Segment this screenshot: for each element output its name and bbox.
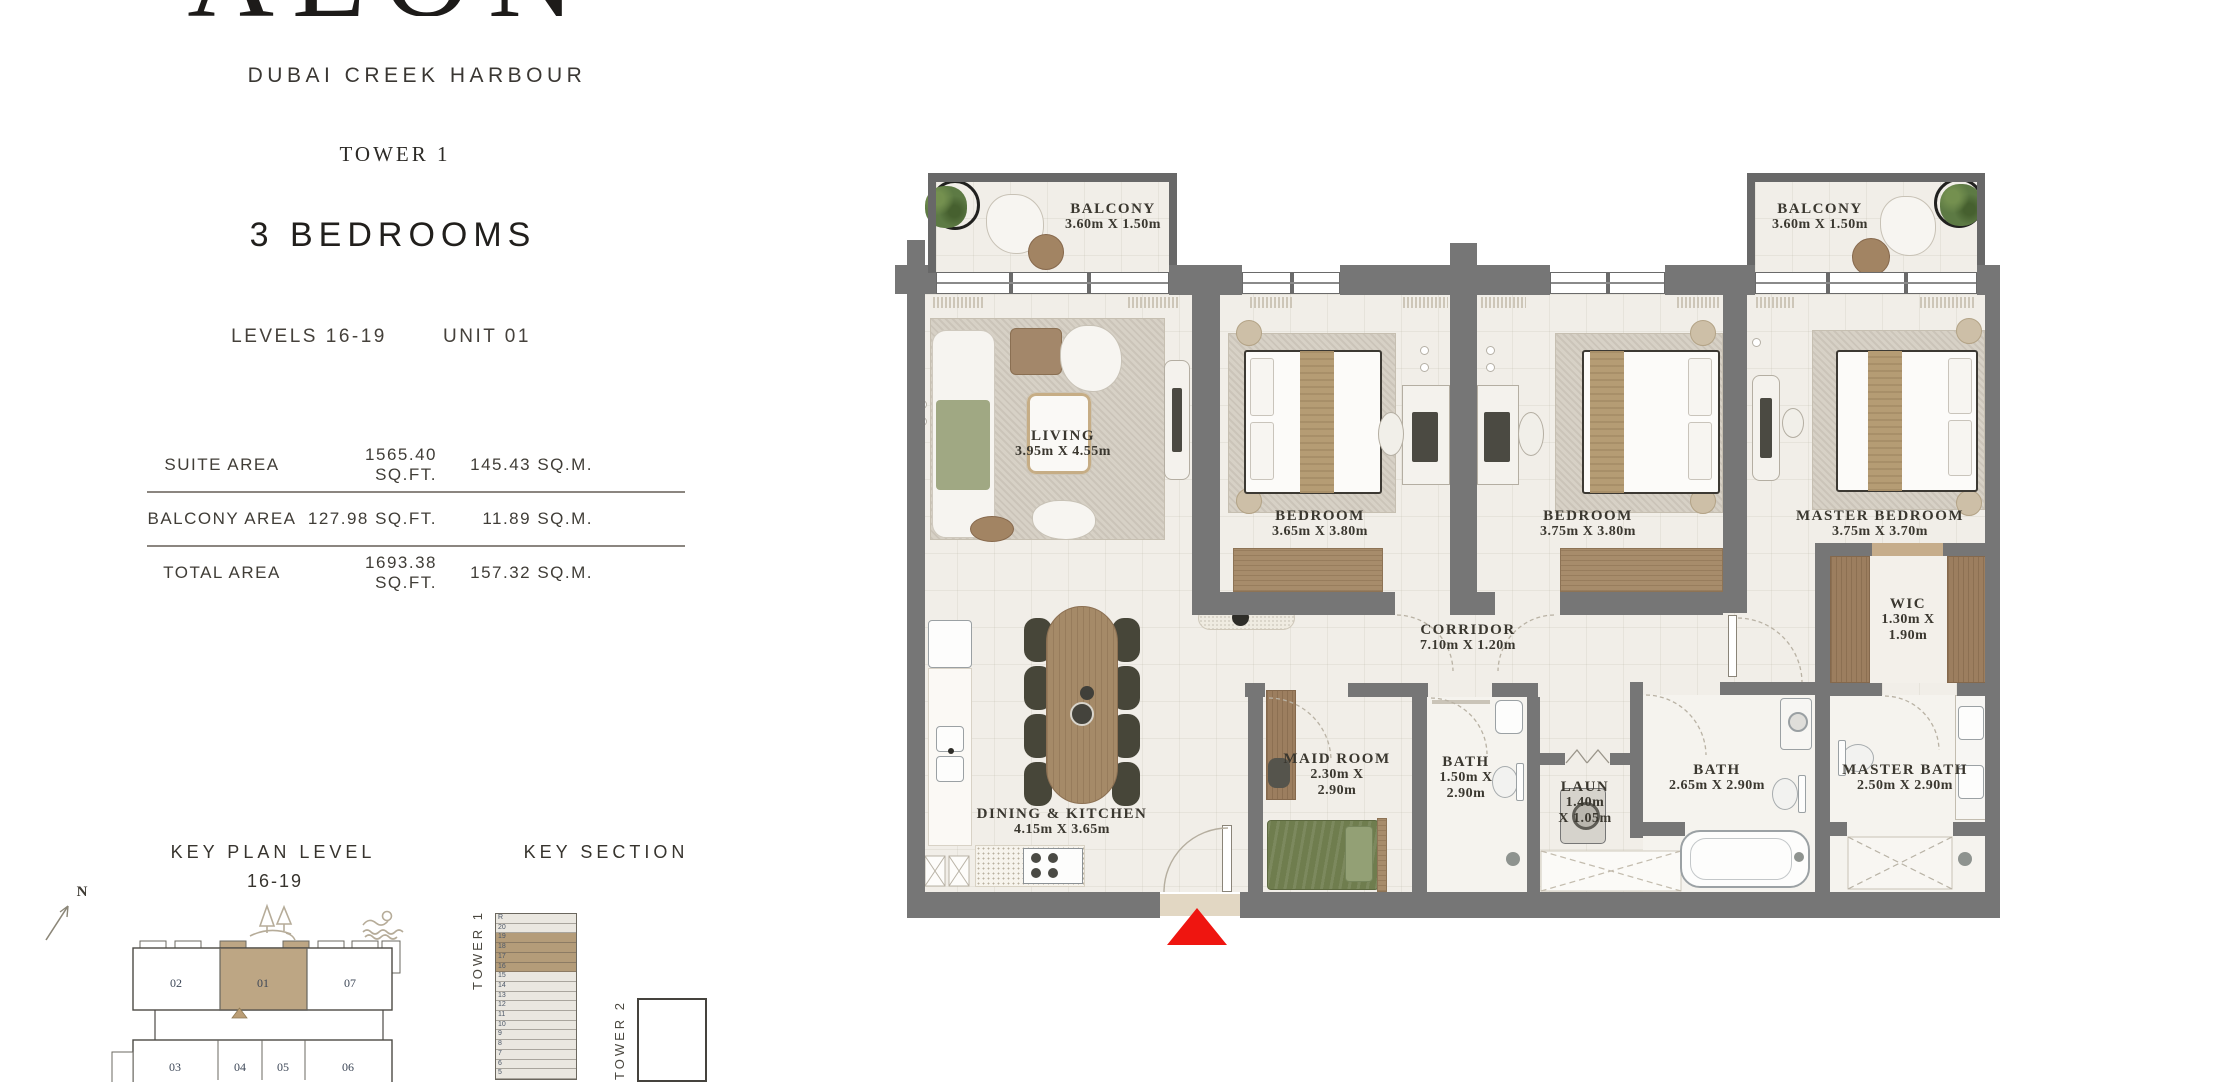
row-label: TOTAL AREA — [147, 563, 297, 583]
fridge — [928, 620, 972, 668]
curtain-hatch — [933, 297, 985, 308]
room-dims: 2.30m X — [1283, 767, 1390, 783]
balcony-wall — [928, 173, 936, 273]
curtain-hatch — [1481, 297, 1526, 308]
entrance-door-arc — [1158, 822, 1230, 894]
wall — [1450, 243, 1477, 273]
shower-head — [1958, 852, 1972, 866]
maid-pillow — [1345, 826, 1373, 882]
room-dims: 7.10m X 1.20m — [1420, 638, 1516, 654]
window-master — [1755, 272, 1977, 294]
bifold-door-laundry — [1565, 748, 1610, 764]
key-plan-diagram: 02 01 07 03 04 05 06 — [100, 888, 410, 1080]
floor-strip: R — [496, 914, 576, 924]
key-plan-building-top: 02 01 07 — [133, 941, 400, 1018]
unit-number: 07 — [344, 976, 356, 990]
row-sqm: 145.43 SQ.M. — [437, 455, 607, 475]
room-dims: 1.40m — [1558, 795, 1611, 811]
floor-strip: 6 — [496, 1060, 576, 1070]
wall — [1348, 683, 1428, 697]
row-sqm: 157.32 SQ.M. — [437, 563, 607, 583]
brand-logo-text: AEON — [185, 0, 595, 16]
room-dims: 2.90m — [1439, 786, 1492, 802]
room-dims: 2.90m — [1283, 783, 1390, 799]
window-mullion — [1087, 273, 1091, 293]
floor-strip: 10 — [496, 1021, 576, 1031]
wall — [1957, 683, 1987, 696]
balcony-wall — [1977, 173, 1985, 273]
floor-strip-highlight: 17 — [496, 953, 576, 963]
wall — [1830, 683, 1882, 696]
nightstand — [1956, 318, 1982, 344]
pillow — [1948, 420, 1972, 476]
wall-light — [1420, 346, 1429, 355]
room-dims: 2.50m X 2.90m — [1842, 778, 1968, 794]
window-mullion — [1290, 273, 1294, 293]
wic-closet-left — [1830, 556, 1870, 683]
desk-chair — [1518, 412, 1544, 456]
north-label: N — [77, 884, 88, 901]
master-shower — [1847, 836, 1953, 890]
wall — [1943, 543, 2000, 556]
balcony-table — [1852, 238, 1890, 276]
room-name: CORRIDOR — [1420, 622, 1516, 638]
key-plan-title: KEY PLAN LEVEL — [171, 842, 376, 863]
wall — [1815, 543, 1830, 900]
floor-number: 6 — [498, 1060, 502, 1067]
unit-number: 06 — [342, 1060, 354, 1074]
wall-light — [1486, 363, 1495, 372]
room-name: BEDROOM — [1540, 508, 1636, 524]
area-table: SUITE AREA 1565.40 SQ.FT. 145.43 SQ.M. B… — [147, 439, 685, 599]
room-label-laundry: LAUN 1.40m X 1.05m — [1558, 779, 1611, 827]
desk-chairpad — [1484, 412, 1510, 462]
maid-bed-frame — [1377, 818, 1387, 892]
door-arc-bath2 — [1645, 694, 1707, 756]
brand-logo-cropped: AEON — [185, 0, 595, 16]
window-living — [936, 272, 1169, 294]
floor-strip: 9 — [496, 1030, 576, 1040]
room-name: DINING & KITCHEN — [977, 806, 1148, 822]
room-label-master-bedroom: MASTER BEDROOM 3.75m X 3.70m — [1796, 508, 1964, 540]
room-name: WIC — [1881, 596, 1934, 612]
window-mullion — [1826, 273, 1830, 293]
room-label-balcony-right: BALCONY 3.60m X 1.50m — [1772, 201, 1868, 233]
shower-head — [1506, 852, 1520, 866]
wall — [1412, 697, 1427, 892]
floor-number: 20 — [498, 924, 506, 931]
curtain-hatch — [1756, 297, 1796, 308]
floor-strip-highlight: 19 — [496, 933, 576, 943]
table-decor — [1080, 686, 1094, 700]
row-sqft: 127.98 SQ.FT. — [297, 509, 437, 529]
curtain-hatch — [1920, 297, 1975, 308]
wic-closet-right — [1947, 556, 1987, 683]
floor-strip: 14 — [496, 982, 576, 992]
floor-number: 10 — [498, 1021, 506, 1028]
tower1-section-label: TOWER 1 — [470, 910, 485, 990]
pillow — [1688, 358, 1712, 416]
cabinet-x-doors — [925, 856, 969, 886]
curtain-hatch — [1128, 297, 1178, 308]
room-label-dining-kitchen: DINING & KITCHEN 4.15m X 3.65m — [977, 806, 1148, 838]
wall — [1527, 697, 1540, 892]
side-table — [1010, 328, 1062, 375]
balcony-table — [1028, 234, 1064, 270]
nightstand — [1236, 320, 1262, 346]
floor-strip: 13 — [496, 992, 576, 1002]
balcony-wall — [1169, 173, 1177, 273]
key-plan-building-bottom: 03 04 05 06 — [112, 1040, 392, 1082]
wall — [1665, 265, 1755, 295]
room-dims: X 1.05m — [1558, 811, 1611, 827]
key-section-title: KEY SECTION — [524, 842, 689, 863]
room-name: BATH — [1439, 754, 1492, 770]
floor-number: 5 — [498, 1069, 502, 1076]
room-name: MAID ROOM — [1283, 751, 1390, 767]
floor-strip-highlight: 18 — [496, 943, 576, 953]
pillow — [1948, 358, 1972, 414]
master-sink — [1958, 706, 1984, 740]
room-dims: 3.75m X 3.80m — [1540, 524, 1636, 540]
tub-faucet — [1794, 852, 1804, 862]
floor-number: 15 — [498, 972, 506, 979]
room-label-bath1: BATH 1.50m X 2.90m — [1439, 754, 1492, 802]
project-name: DUBAI CREEK HARBOUR — [248, 64, 587, 88]
wall — [1169, 265, 1242, 295]
room-label-balcony-left: BALCONY 3.60m X 1.50m — [1065, 201, 1161, 233]
floor-strip-highlight: 16 — [496, 963, 576, 973]
room-dims: 2.65m X 2.90m — [1669, 778, 1765, 794]
room-name: MASTER BEDROOM — [1796, 508, 1964, 524]
wardrobe-bedroom1 — [1233, 548, 1383, 592]
wood-stool — [970, 516, 1014, 542]
room-label-wic: WIC 1.30m X 1.90m — [1881, 596, 1934, 644]
floor-number: 8 — [498, 1040, 502, 1047]
curtain-hatch — [1403, 297, 1448, 308]
brochure-page: { "brand": { "logo_text": "AEON", "proje… — [0, 0, 2220, 1080]
floor-number: 16 — [498, 963, 506, 970]
wall — [1630, 682, 1643, 838]
bed-throw — [1868, 351, 1902, 491]
bathtub-inner — [1690, 838, 1792, 880]
balcony-wall — [1747, 173, 1985, 182]
bed-throw — [1300, 351, 1334, 493]
room-dims: 1.30m X — [1881, 612, 1934, 628]
wall — [1492, 683, 1538, 697]
bath1-toilet — [1492, 766, 1518, 798]
burner — [1031, 853, 1041, 863]
row-sqft: 1565.40 SQ.FT. — [297, 445, 437, 485]
window-bedroom2 — [1550, 272, 1665, 294]
balcony-wall — [1747, 173, 1755, 273]
master-wic-threshold — [1872, 543, 1943, 556]
kitchen-sink — [936, 756, 964, 782]
floor-number: 13 — [498, 992, 506, 999]
pillow — [1688, 422, 1712, 480]
table-row: BALCONY AREA 127.98 SQ.FT. 11.89 SQ.M. — [147, 493, 685, 547]
room-name: BATH — [1669, 762, 1765, 778]
floor-strip: 20 — [496, 924, 576, 934]
tv-screen — [1172, 388, 1182, 452]
bath2-toilet — [1772, 778, 1798, 810]
wall — [1340, 265, 1550, 295]
armchair — [1060, 325, 1122, 392]
wall — [1538, 753, 1565, 765]
room-label-bedroom1: BEDROOM 3.65m X 3.80m — [1272, 508, 1368, 540]
door-arc-master-hall — [1737, 617, 1803, 683]
room-dims: 3.75m X 3.70m — [1796, 524, 1964, 540]
floor-number: 7 — [498, 1050, 502, 1057]
floor-strip: 8 — [496, 1040, 576, 1050]
linen-closet — [1540, 850, 1682, 892]
wall — [1192, 294, 1220, 615]
desk-chairpad — [1412, 412, 1438, 462]
wall — [907, 240, 925, 918]
floor-strip: 15 — [496, 972, 576, 982]
curtain-hatch — [1677, 297, 1721, 308]
room-name: BEDROOM — [1272, 508, 1368, 524]
row-sqm: 11.89 SQ.M. — [437, 509, 607, 529]
wall — [1477, 592, 1495, 615]
door-arc-bath1 — [1430, 697, 1488, 755]
room-label-maid-room: MAID ROOM 2.30m X 2.90m — [1283, 751, 1390, 799]
nightstand — [1690, 320, 1716, 346]
unit-number: 03 — [169, 1060, 181, 1074]
floor-number: 17 — [498, 953, 506, 960]
room-name: LIVING — [1015, 428, 1111, 444]
floor-number: 12 — [498, 1001, 506, 1008]
room-dims: 3.60m X 1.50m — [1772, 217, 1868, 233]
bath1-toilet-tank — [1516, 763, 1524, 801]
table-row: SUITE AREA 1565.40 SQ.FT. 145.43 SQ.M. — [147, 439, 685, 493]
room-dims: 4.15m X 3.65m — [977, 822, 1148, 838]
wall — [1820, 543, 1872, 556]
room-name: LAUN — [1558, 779, 1611, 795]
wall — [1450, 294, 1477, 615]
room-label-living: LIVING 3.95m X 4.55m — [1015, 428, 1111, 460]
wall — [1248, 683, 1263, 892]
curtain-hatch — [1250, 297, 1292, 308]
tv-screen — [1760, 398, 1772, 458]
floor-number: 19 — [498, 933, 506, 940]
unit-label: UNIT 01 — [443, 326, 531, 348]
row-sqft: 1693.38 SQ.FT. — [297, 553, 437, 593]
floor-number: 18 — [498, 943, 506, 950]
burner — [1031, 868, 1041, 878]
floor-strip: 11 — [496, 1011, 576, 1021]
balcony-chair — [1880, 196, 1936, 256]
table-decor — [1070, 702, 1094, 726]
floor-number: 11 — [498, 1011, 505, 1018]
room-label-corridor: CORRIDOR 7.10m X 1.20m — [1420, 622, 1516, 654]
wall-light — [1420, 363, 1429, 372]
window-mullion — [1904, 273, 1908, 293]
room-dims: 3.60m X 1.50m — [1065, 217, 1161, 233]
unit-number: 01 — [257, 976, 269, 990]
table-row: TOTAL AREA 1693.38 SQ.FT. 157.32 SQ.M. — [147, 547, 685, 599]
door-leaf-master-hall — [1728, 615, 1737, 677]
room-dims: 3.95m X 4.55m — [1015, 444, 1111, 460]
wall — [1723, 294, 1747, 613]
floor-strip: 12 — [496, 1001, 576, 1011]
room-dims: 3.65m X 3.80m — [1272, 524, 1368, 540]
plant — [1940, 184, 1982, 226]
floor-strip: 5 — [496, 1069, 576, 1079]
floor-number: 9 — [498, 1030, 502, 1037]
wall — [1240, 892, 2000, 918]
pillow — [1250, 358, 1274, 416]
wall-light — [1486, 346, 1495, 355]
wall — [1953, 822, 2000, 836]
tower2-section-outline — [637, 998, 707, 1082]
wall — [1720, 682, 1820, 695]
unit-number: 02 — [170, 976, 182, 990]
swimmer-icon — [363, 912, 403, 940]
wall — [1220, 592, 1395, 615]
burner — [1048, 853, 1058, 863]
room-label-bedroom2: BEDROOM 3.75m X 3.80m — [1540, 508, 1636, 540]
sofa-green-throw — [936, 400, 990, 490]
burner — [1048, 868, 1058, 878]
room-name: BALCONY — [1772, 201, 1868, 217]
trees-icon — [250, 906, 295, 940]
north-arrow-icon — [36, 898, 78, 944]
bath2-sink — [1788, 712, 1808, 732]
room-dims: 1.50m X — [1439, 770, 1492, 786]
tower-name: TOWER 1 — [339, 142, 450, 167]
window-bedroom1 — [1242, 272, 1340, 294]
wall — [1985, 270, 2000, 918]
stool — [1782, 408, 1804, 438]
door-arc-master-bath — [1884, 695, 1940, 751]
floor-number: R — [498, 914, 503, 921]
bath1-sink — [1495, 700, 1523, 734]
balcony-wall — [928, 173, 1177, 182]
wall — [1630, 822, 1685, 836]
wall — [1820, 822, 1847, 836]
room-dims: 1.90m — [1881, 628, 1934, 644]
tower1-section-stack: R 20 19 18 17 16 15 14 13 12 11 10 9 8 7… — [495, 913, 577, 1080]
wall-light — [1752, 338, 1761, 347]
room-name: BALCONY — [1065, 201, 1161, 217]
desk-chair — [1378, 412, 1404, 456]
row-label: BALCONY AREA — [147, 509, 297, 529]
room-label-bath2: BATH 2.65m X 2.90m — [1669, 762, 1765, 794]
bath2-toilet-tank — [1798, 775, 1806, 813]
wall — [1560, 592, 1723, 615]
floor-number: 14 — [498, 982, 506, 989]
row-label: SUITE AREA — [147, 455, 297, 475]
bed-throw — [1590, 351, 1624, 493]
unit-type-title: 3 BEDROOMS — [250, 216, 537, 255]
floor-strip: 7 — [496, 1050, 576, 1060]
armchair — [1032, 500, 1096, 540]
room-label-master-bath: MASTER BATH 2.50m X 2.90m — [1842, 762, 1968, 794]
faucet — [948, 748, 954, 754]
unit-number: 05 — [277, 1060, 289, 1074]
wall — [907, 892, 1160, 918]
window-mullion — [1009, 273, 1013, 293]
tower2-section-label: TOWER 2 — [612, 1000, 627, 1080]
unit-number: 04 — [234, 1060, 246, 1074]
entrance-marker — [1167, 908, 1227, 945]
room-name: MASTER BATH — [1842, 762, 1968, 778]
window-mullion — [1606, 273, 1610, 293]
wardrobe-bedroom2 — [1560, 548, 1723, 592]
levels-label: LEVELS 16-19 — [231, 326, 387, 348]
pillow — [1250, 422, 1274, 480]
